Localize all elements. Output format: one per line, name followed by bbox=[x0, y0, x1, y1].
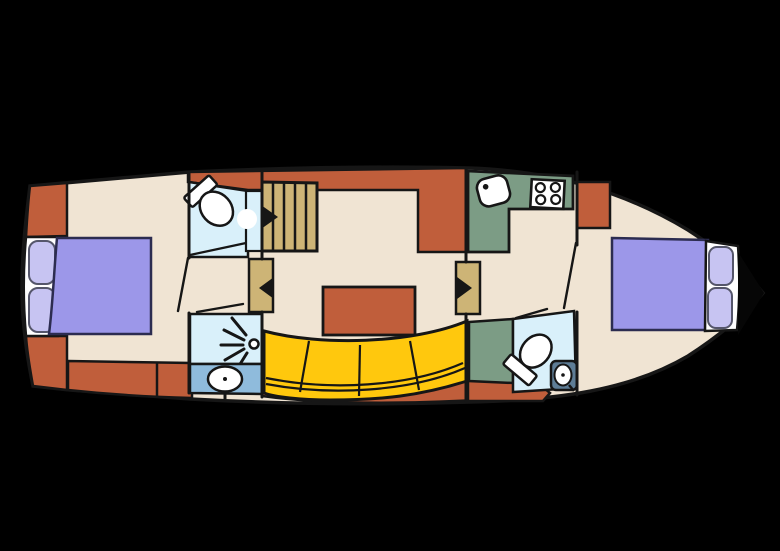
bow-locker bbox=[738, 252, 764, 335]
aft-floor-trim-band bbox=[68, 361, 192, 398]
passage-door-right bbox=[456, 262, 480, 314]
aft-trim-bottom-block bbox=[26, 336, 67, 390]
fore-bathroom-cabinet bbox=[469, 319, 513, 383]
galley-trim-block bbox=[577, 182, 610, 228]
boat-floor-plan-canvas bbox=[0, 0, 780, 551]
door-knob bbox=[237, 209, 257, 229]
boat-floor-plan bbox=[0, 0, 780, 551]
aft-bed-blanket bbox=[49, 238, 151, 334]
aft-pillow-top bbox=[29, 241, 55, 284]
aft-trim-top-block bbox=[26, 183, 67, 237]
fore-bed-blanket bbox=[612, 238, 708, 330]
dinette-table bbox=[323, 287, 415, 335]
fore-washbasin-icon bbox=[551, 361, 577, 391]
fore-pillow-top bbox=[709, 247, 733, 285]
stove-icon bbox=[530, 179, 564, 209]
fore-pillow-bottom bbox=[708, 288, 732, 328]
passage-door-left bbox=[249, 259, 274, 312]
